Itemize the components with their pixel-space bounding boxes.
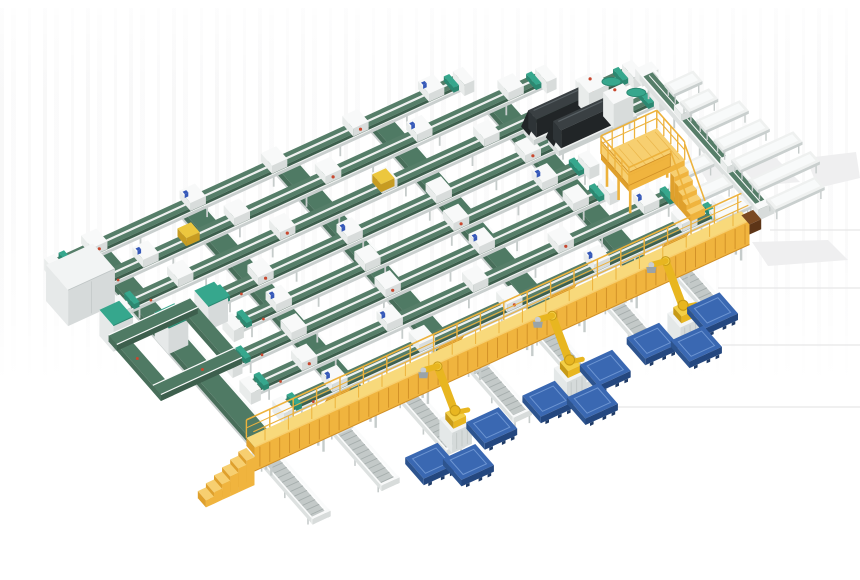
bridge-stairs [198,448,255,508]
factory-render-canvas [0,0,860,580]
factory-scene [0,0,860,580]
buffer-disc [602,77,621,85]
buffer-disc [627,88,646,96]
